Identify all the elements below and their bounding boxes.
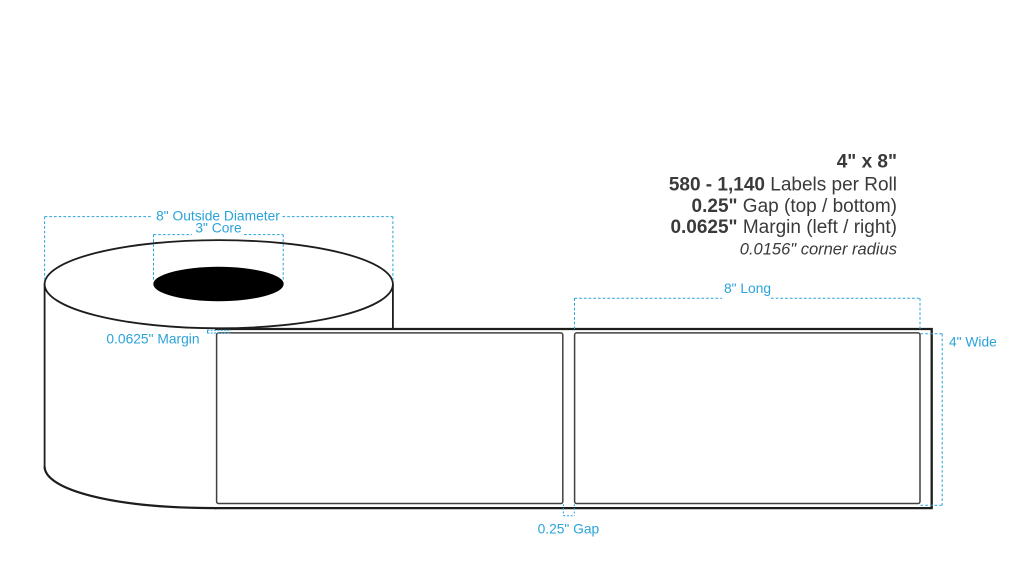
svg-text:0.0156" corner radius: 0.0156" corner radius [740,241,897,259]
svg-text:580 - 1,140 Labels per Roll: 580 - 1,140 Labels per Roll [669,175,897,196]
svg-text:0.0625" Margin: 0.0625" Margin [106,331,199,346]
svg-text:0.25" Gap (top / bottom): 0.25" Gap (top / bottom) [692,196,897,217]
svg-text:3" Core: 3" Core [195,220,242,235]
svg-text:0.0625" Margin (left / right): 0.0625" Margin (left / right) [670,217,897,238]
svg-text:4" x 8": 4" x 8" [837,152,897,173]
svg-text:4" Wide: 4" Wide [949,335,997,350]
svg-text:8" Long: 8" Long [724,281,771,296]
svg-text:0.25" Gap: 0.25" Gap [538,521,600,536]
